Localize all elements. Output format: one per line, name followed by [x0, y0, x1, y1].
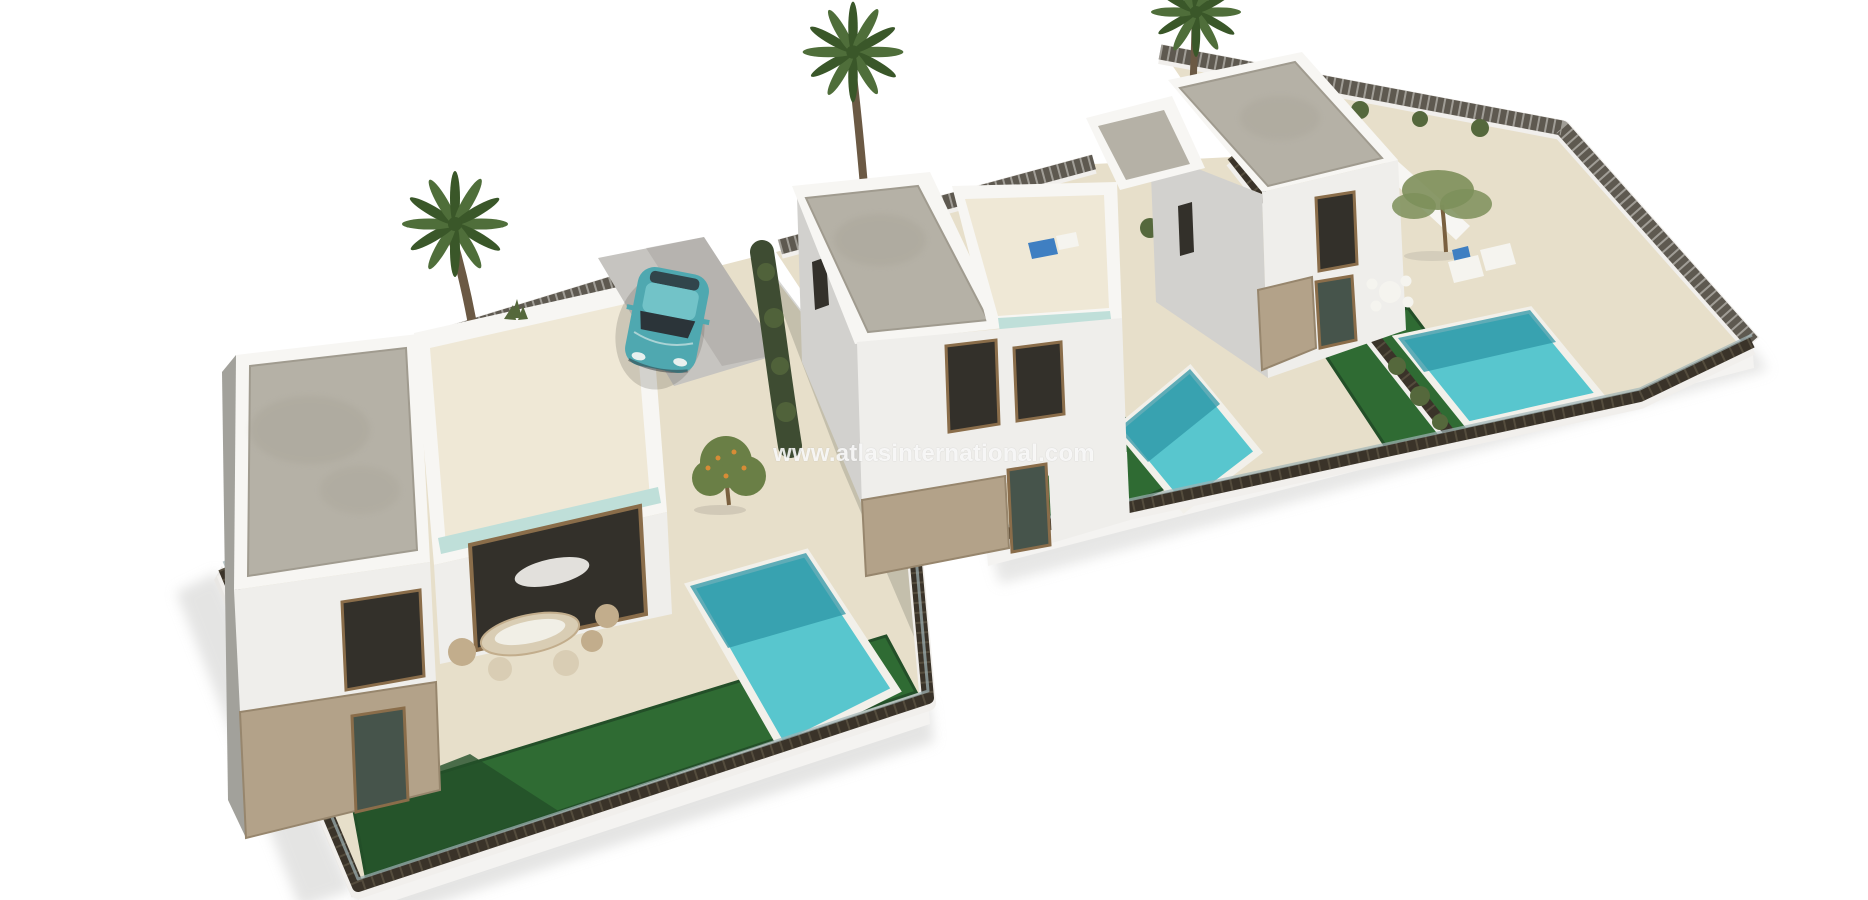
gravel-mottle [834, 214, 926, 266]
villa-left-window-upper [342, 590, 424, 690]
villa-left-ground-door [352, 708, 408, 812]
tree-shadow [694, 505, 746, 515]
palm-tree-left [402, 171, 508, 277]
bush [1412, 111, 1428, 127]
bush [1432, 414, 1448, 430]
hedge-blob [771, 357, 789, 375]
orange-fruit [706, 466, 711, 471]
gravel-mottle [1240, 96, 1320, 140]
villa-middle-door [1008, 464, 1050, 552]
gravel-mottle [250, 396, 370, 464]
villa-right-window-upper [1316, 192, 1357, 271]
orange-tree-canopy [692, 460, 728, 496]
bush [1471, 119, 1489, 137]
dining-chair [1367, 279, 1378, 290]
orange-fruit [732, 450, 737, 455]
pouf [553, 650, 579, 676]
dining-chair [1371, 301, 1382, 312]
orange-tree-canopy [726, 456, 766, 496]
villas-3d-render [0, 0, 1868, 900]
tree-shadow [1404, 251, 1460, 261]
dining-chair [1403, 297, 1414, 308]
bush [1388, 357, 1406, 375]
render-canvas: www.atlasinternational.com [0, 0, 1868, 900]
hedge-blob [776, 402, 796, 422]
pouf [595, 604, 619, 628]
villa-left-gravel-roof [248, 348, 417, 576]
olive-tree-canopy [1392, 193, 1436, 219]
gravel-mottle [320, 466, 400, 514]
orange-fruit [716, 456, 721, 461]
villa-middle-window-upper [946, 340, 999, 432]
pouf [581, 630, 603, 652]
hedge-blob [764, 308, 784, 328]
villa-middle-window-slider [1014, 342, 1064, 421]
palm-tree-middle [803, 2, 904, 103]
dining-table [1379, 281, 1401, 303]
orange-tree-trunk [727, 486, 729, 505]
hedge-blob [757, 263, 775, 281]
dining-chair [1401, 276, 1412, 287]
orange-fruit [724, 474, 729, 479]
orange-fruit [742, 466, 747, 471]
pouf [448, 638, 476, 666]
villa-right-side-window [1178, 202, 1194, 256]
villa-right-door [1316, 276, 1356, 348]
pouf [488, 657, 512, 681]
bush [1410, 386, 1430, 406]
olive-tree-canopy [1440, 189, 1492, 219]
